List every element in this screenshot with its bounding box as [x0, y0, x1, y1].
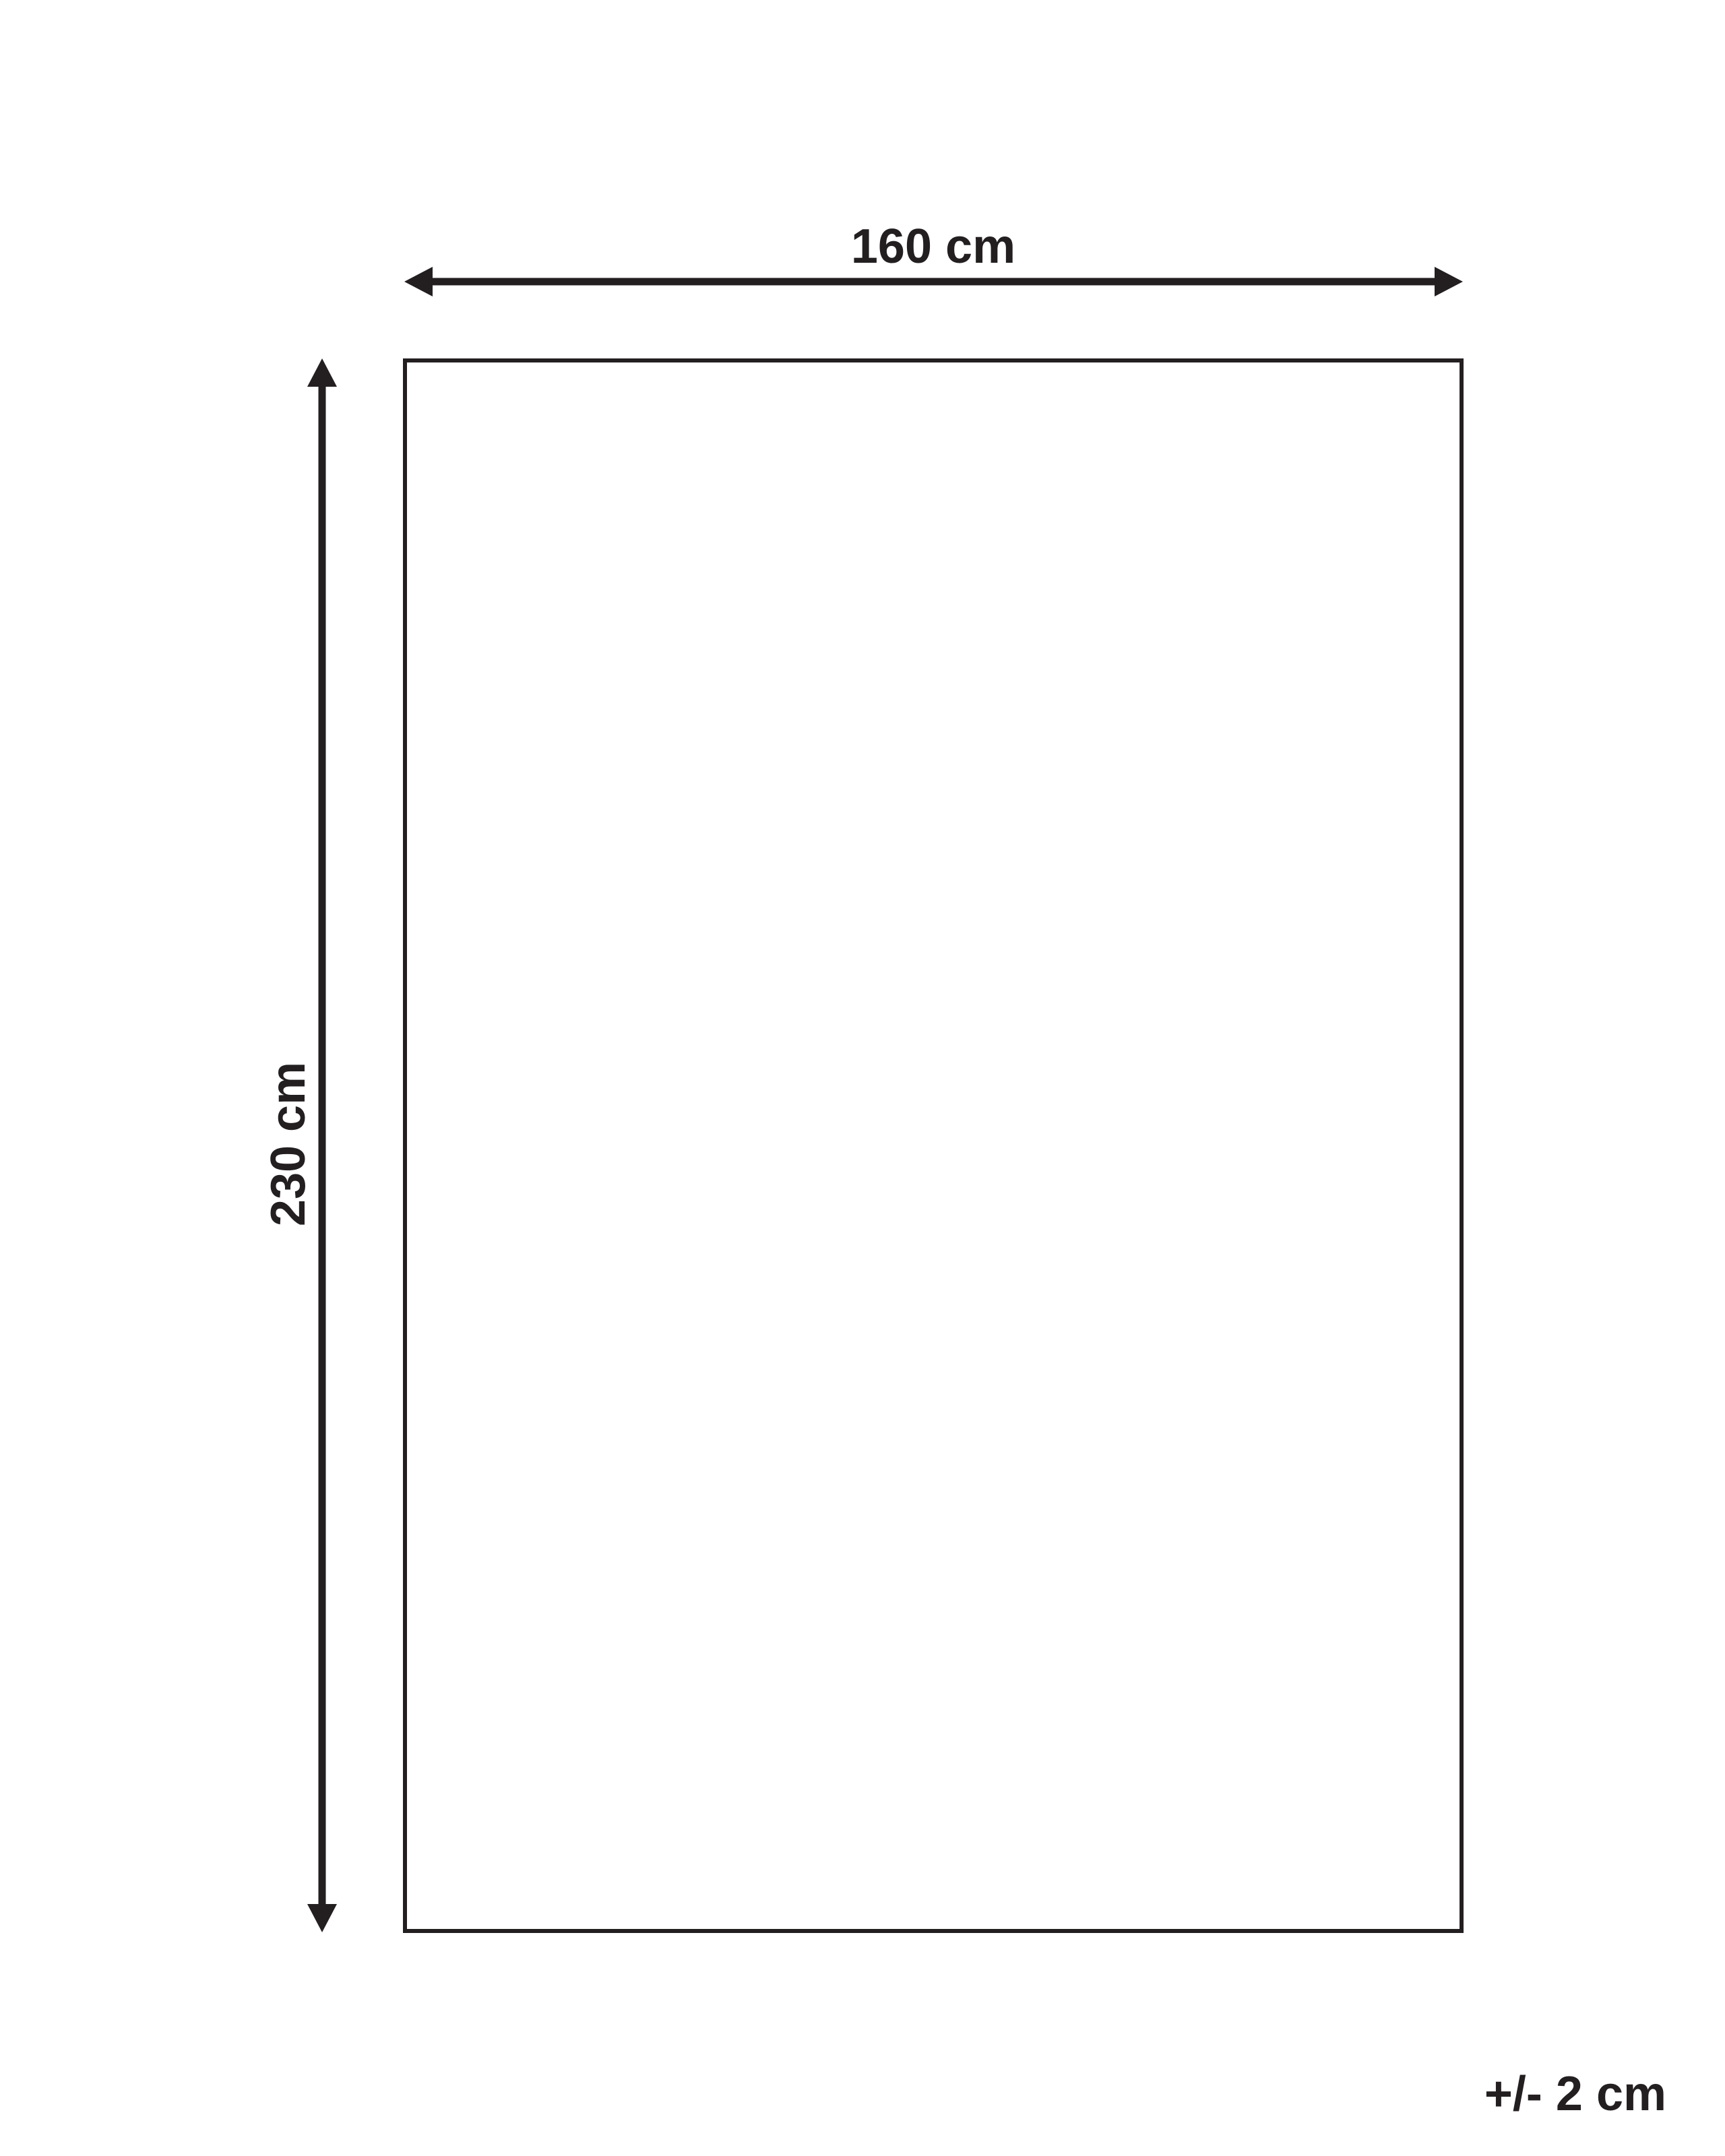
dimension-arrows — [0, 0, 1725, 2156]
tolerance-label: +/- 2 cm — [1484, 2070, 1666, 2118]
arrowhead-right-icon — [1435, 267, 1463, 296]
arrowhead-up-icon — [307, 358, 337, 387]
arrowhead-left-icon — [404, 267, 433, 296]
width-dimension-label: 160 cm — [403, 222, 1464, 271]
dimension-diagram: 160 cm 230 cm +/- 2 cm — [0, 0, 1725, 2156]
height-dimension-label: 230 cm — [264, 1062, 313, 1226]
arrowhead-down-icon — [307, 1904, 337, 1932]
